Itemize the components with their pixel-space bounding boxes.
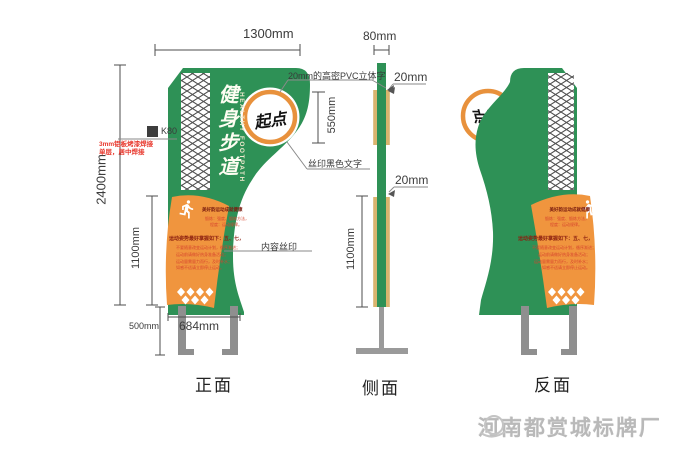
signage-drawing-canvas: 起点	[0, 0, 680, 450]
annotation-content-silk: 内容丝印	[261, 240, 297, 253]
footer-brand-bar: 河南都赏城标牌厂	[478, 412, 662, 442]
back-panel-body-line: 如感不适请立即停止运动。	[532, 265, 590, 272]
sign-title-english: HEALTHY FOOTPATH	[238, 92, 245, 192]
dim-side-thickness: 80mm	[363, 29, 396, 43]
back-panel-body-line: 不要随意改变运动计划，循序渐进；	[532, 245, 590, 252]
side-base	[356, 348, 408, 354]
dim-letter-zone-height: 550mm	[326, 85, 338, 145]
back-panel-notice: 运动姿势最好掌握如下：五、七，	[518, 235, 592, 242]
color-swatch-k80	[147, 126, 158, 137]
material-note-line2: 单层，居中焊接	[99, 149, 145, 157]
panel-body-line: 不要随意改变运动计划，循序渐进；	[176, 245, 240, 252]
dim-leg-span: 684mm	[179, 319, 219, 333]
dim-front-width: 1300mm	[243, 26, 294, 41]
phone-swoosh-icon	[478, 412, 508, 444]
panel-body-line: 如感不适请立即停止运动。	[176, 265, 240, 272]
dim-panel-depth: 20mm	[395, 173, 428, 187]
side-view	[356, 63, 408, 354]
back-panel-body: 不要随意改变运动计划，循序渐进； 运动前请做好热身准备活动； 运动量需量力而行，…	[532, 245, 590, 272]
back-panel-body-line: 运动前请做好热身准备活动；	[532, 252, 590, 259]
back-panel-subline-2: 程度：运动规律。	[540, 222, 582, 228]
annotation-pvc-letters: 20mm的高密PVC立体字	[288, 69, 386, 82]
side-pole	[379, 307, 384, 349]
panel-subline-2: 程度：运动规律。	[210, 222, 242, 228]
panel-body-line: 运动前请做好热身准备活动；	[176, 252, 240, 259]
dim-panel-height: 1100mm	[130, 218, 142, 278]
dim-leg-height: 500mm	[129, 321, 159, 331]
panel-notice: 运动姿势最好掌握如下：五、七，	[169, 235, 244, 242]
annotation-silk-black: 丝印黑色文字	[308, 157, 362, 170]
side-view-label: 侧面	[353, 374, 409, 399]
front-tread-pattern	[181, 73, 210, 190]
dim-letter-depth: 20mm	[394, 70, 427, 84]
back-tread-pattern	[548, 73, 574, 190]
dim-total-height: 2400mm	[94, 150, 109, 210]
dim-side-panel-height: 1100mm	[345, 219, 357, 279]
back-view-label: 反面	[525, 371, 581, 396]
front-view-label: 正面	[186, 371, 242, 396]
panel-title: 美好韵运动成就健康	[202, 207, 243, 213]
material-note-line1: 3mm铝板烤漆焊接	[99, 141, 153, 149]
panel-body: 不要随意改变运动计划，循序渐进； 运动前请做好热身准备活动； 运动量需量力而行，…	[176, 245, 240, 272]
annotation-color-code: K80	[161, 126, 177, 136]
side-sign-profile	[377, 63, 386, 307]
sign-title-chinese: 健身步道	[212, 84, 241, 202]
back-panel-title: 美好韵运动成就健康	[548, 207, 590, 213]
